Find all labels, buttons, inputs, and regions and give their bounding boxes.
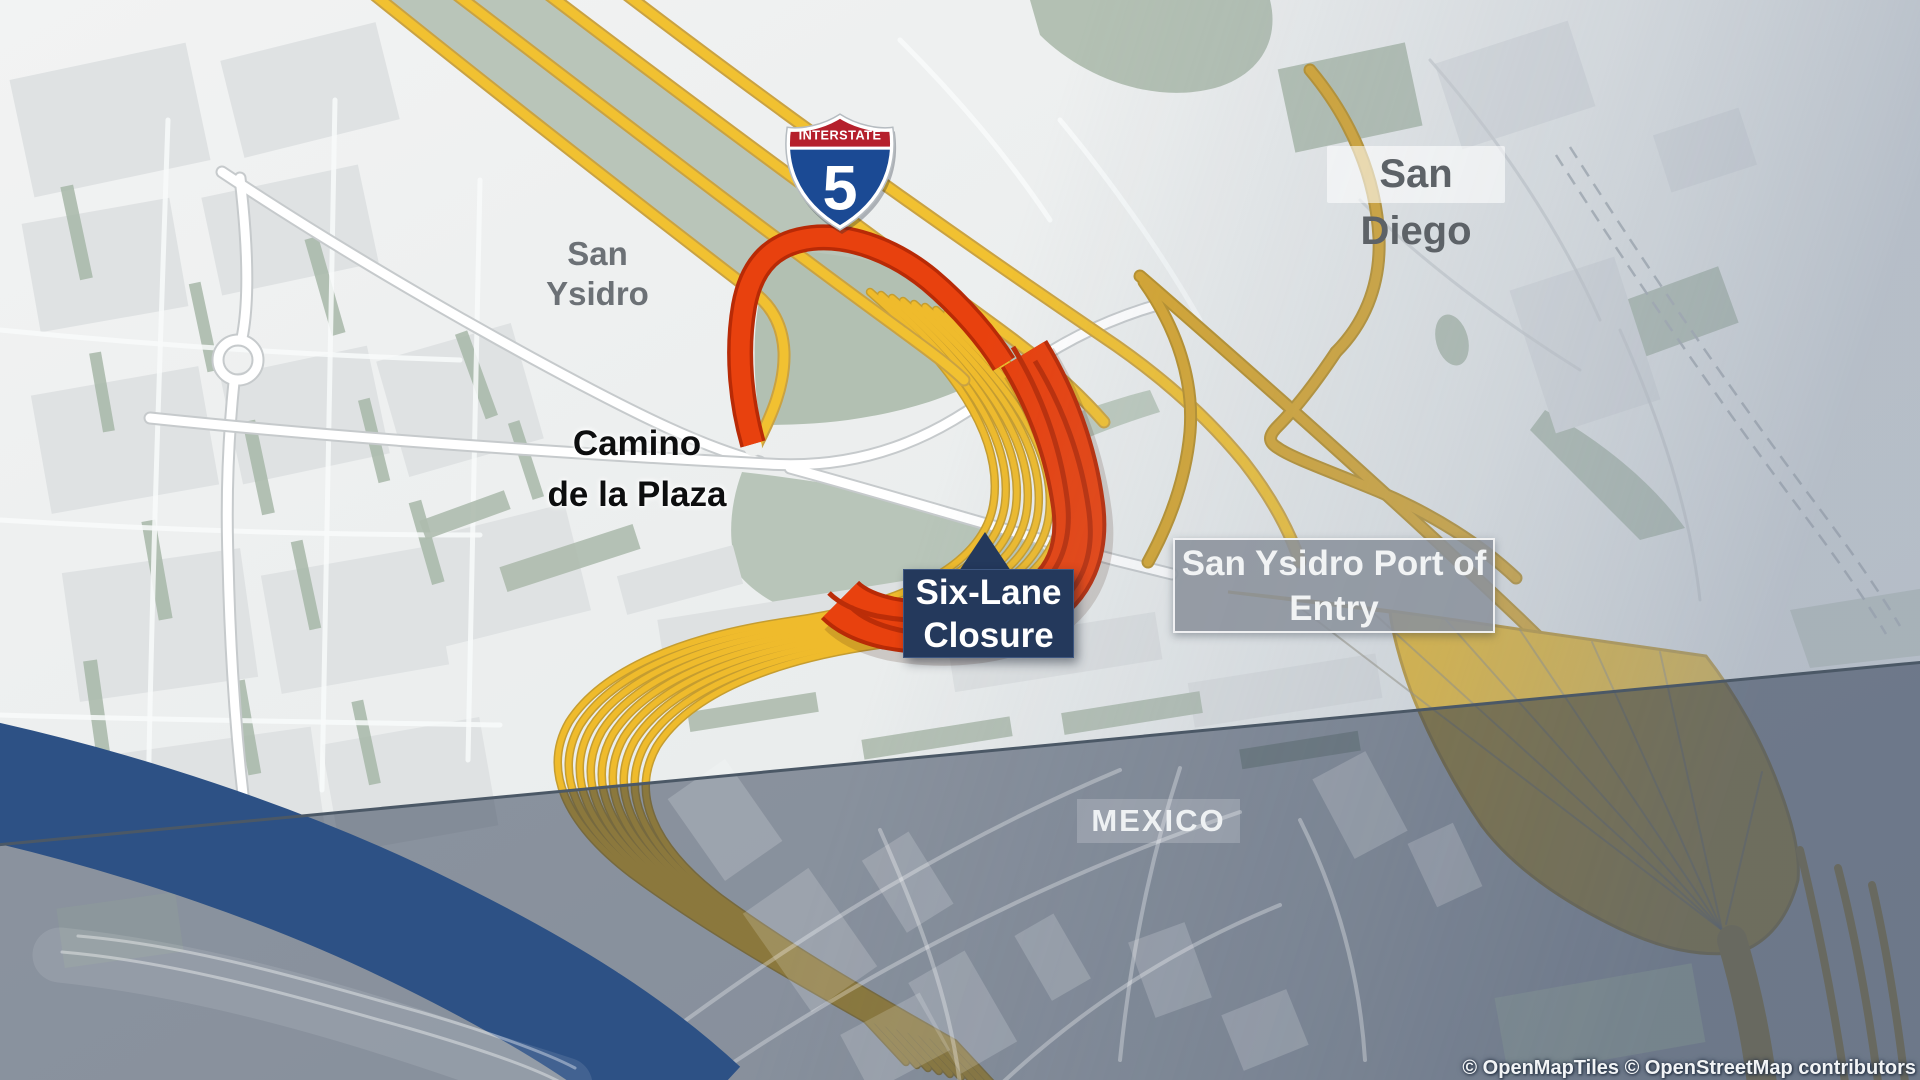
shield-top-text: INTERSTATE xyxy=(799,129,882,143)
closure-line2: Closure xyxy=(904,614,1073,657)
camino-de-la-plaza-label: Camino de la Plaza xyxy=(462,418,812,520)
san-ysidro-line1: San xyxy=(505,234,690,274)
shield-number: 5 xyxy=(822,154,857,224)
six-lane-closure-callout: Six-Lane Closure xyxy=(903,569,1074,658)
closure-line1: Six-Lane xyxy=(904,571,1073,614)
closure-callout-arrow xyxy=(959,532,1011,571)
san-diego-label: San Diego xyxy=(1327,146,1505,203)
port-line1: San Ysidro Port of xyxy=(1175,541,1493,586)
interstate-5-shield-icon: INTERSTATE 5 xyxy=(779,108,901,234)
port-of-entry-label: San Ysidro Port of Entry xyxy=(1173,538,1495,633)
mexico-label: MEXICO xyxy=(1077,799,1240,843)
camino-line1: Camino xyxy=(462,418,812,469)
port-line2: Entry xyxy=(1175,586,1493,631)
map-attribution: © OpenMapTiles © OpenStreetMap contribut… xyxy=(1462,1057,1916,1080)
camino-line2: de la Plaza xyxy=(462,469,812,520)
san-ysidro-line2: Ysidro xyxy=(505,274,690,314)
news-map-canvas: INTERSTATE 5 San Diego San Ysidro Camino… xyxy=(0,0,1920,1080)
san-ysidro-label: San Ysidro xyxy=(505,234,690,314)
